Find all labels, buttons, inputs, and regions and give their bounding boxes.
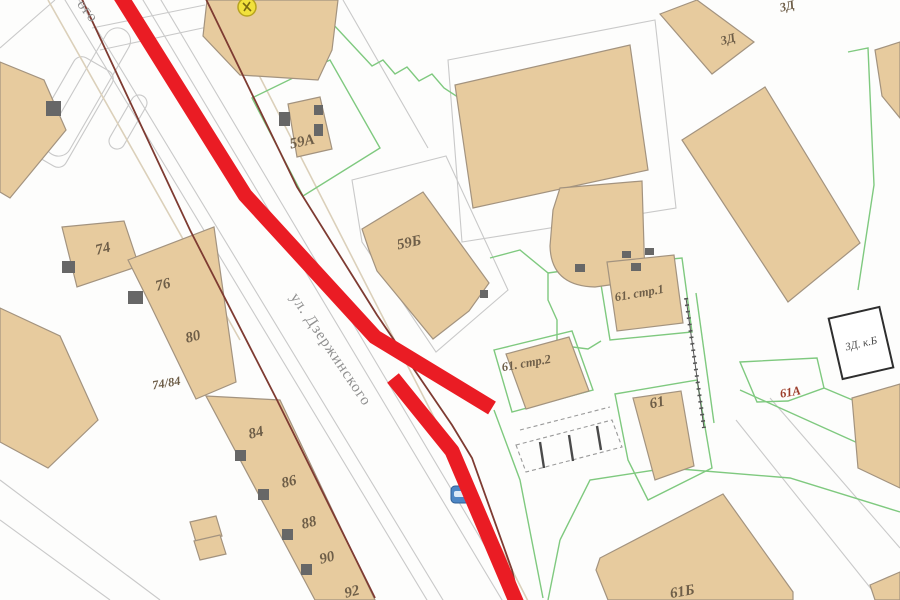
city-map: 3Д. к.Б 74 76 80 74/84 84 86 88 90 92 59… [0, 0, 900, 600]
building-label-61b: 61Б [669, 582, 696, 600]
map-canvas: 3Д. к.Б 74 76 80 74/84 84 86 88 90 92 59… [0, 0, 900, 600]
poi-marker-icon [238, 0, 256, 16]
